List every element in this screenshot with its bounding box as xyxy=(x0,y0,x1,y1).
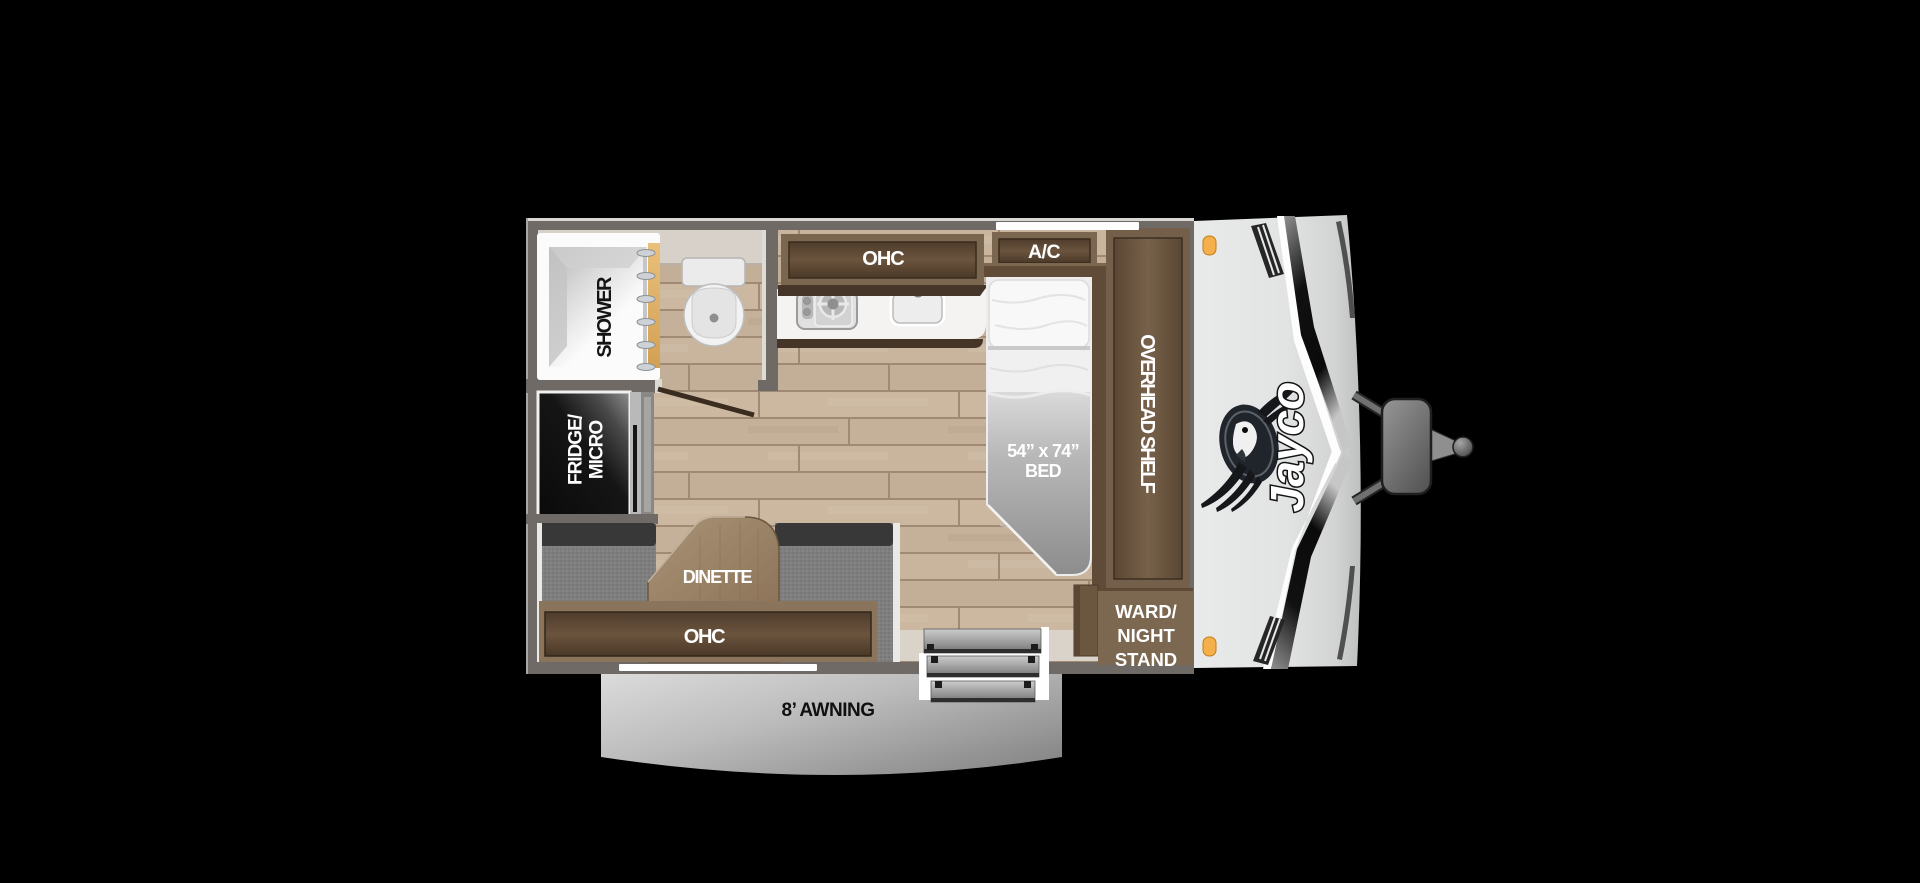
svg-text:OVERHEAD SHELF: OVERHEAD SHELF xyxy=(1136,334,1158,494)
svg-text:SHOWER: SHOWER xyxy=(594,276,616,358)
svg-text:BED: BED xyxy=(1025,461,1062,481)
svg-text:8’ AWNING: 8’ AWNING xyxy=(782,700,875,721)
svg-text:OHC: OHC xyxy=(862,248,904,270)
svg-text:54” x 74”: 54” x 74” xyxy=(1007,441,1079,461)
svg-text:MICRO: MICRO xyxy=(587,421,608,480)
svg-text:STAND: STAND xyxy=(1115,649,1177,670)
svg-text:OHC: OHC xyxy=(684,626,725,648)
svg-text:NIGHT: NIGHT xyxy=(1117,625,1175,646)
svg-text:WARD/: WARD/ xyxy=(1115,601,1177,622)
svg-text:A/C: A/C xyxy=(1028,241,1061,263)
svg-text:Jayco: Jayco xyxy=(1261,382,1313,512)
svg-text:FRIDGE/: FRIDGE/ xyxy=(566,413,587,485)
svg-text:DINETTE: DINETTE xyxy=(683,567,753,587)
